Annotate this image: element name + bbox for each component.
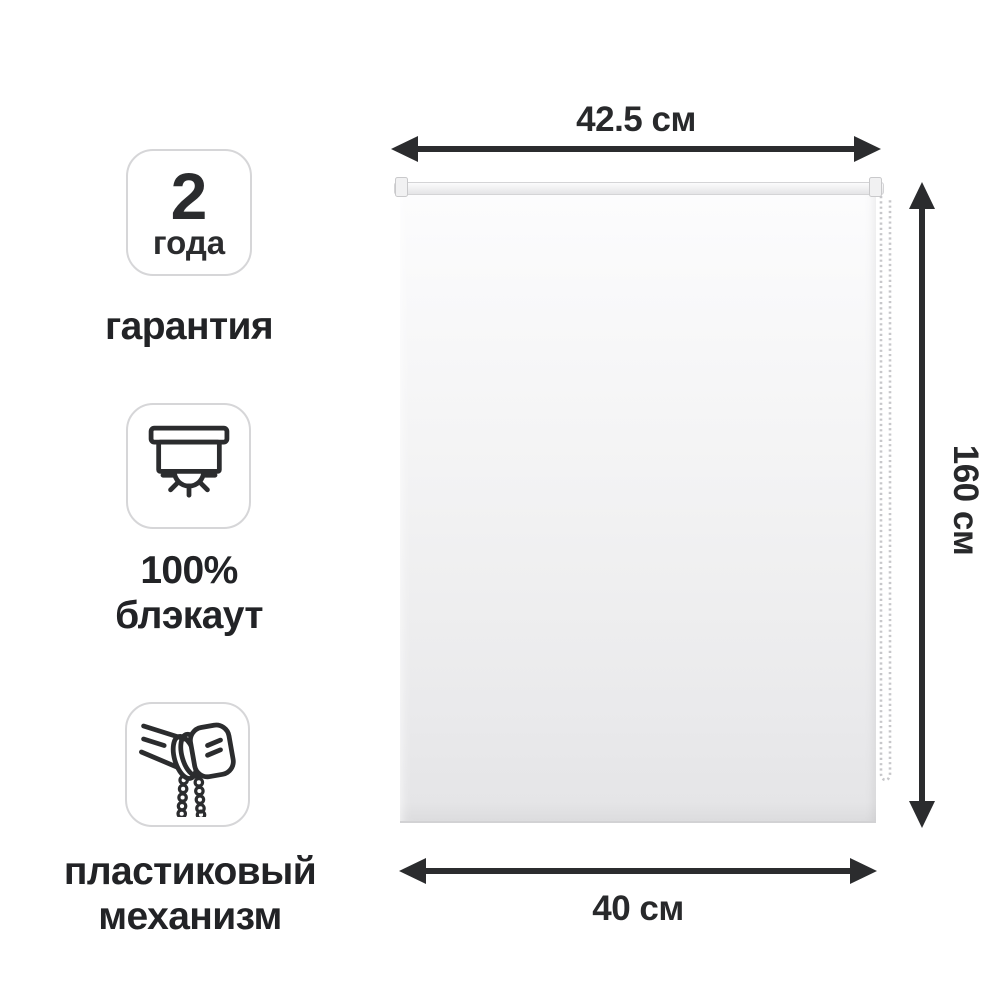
feature-label-blackout: 100% блэкаут — [39, 548, 339, 638]
blackout-feature-box — [126, 403, 251, 529]
dim-label-right-height: 160 см — [945, 420, 985, 580]
warranty-years-value: 2 — [171, 166, 208, 226]
feature-label-warranty: гарантия — [39, 304, 339, 349]
dim-arrow-right-height — [904, 179, 940, 831]
feature-label-mechanism: пластиковый механизм — [20, 849, 360, 939]
blind-bracket-left — [395, 177, 408, 197]
blind-chain — [877, 196, 893, 796]
warranty-badge: 2 года — [126, 149, 252, 276]
dim-arrow-top-width — [388, 133, 884, 165]
roller-mechanism-icon — [136, 713, 240, 817]
warranty-years-unit: года — [153, 226, 225, 260]
blind-top-rail — [394, 182, 884, 195]
product-infographic: 2 года гарантия 100% блэкаут — [0, 0, 1000, 1000]
dim-arrow-bottom-width — [396, 855, 880, 887]
blind-bracket-right — [869, 177, 882, 197]
mechanism-feature-box — [125, 702, 250, 827]
blackout-blind-icon — [137, 414, 241, 518]
blind-fabric — [400, 194, 876, 823]
dim-label-bottom-width: 40 см — [396, 889, 880, 929]
